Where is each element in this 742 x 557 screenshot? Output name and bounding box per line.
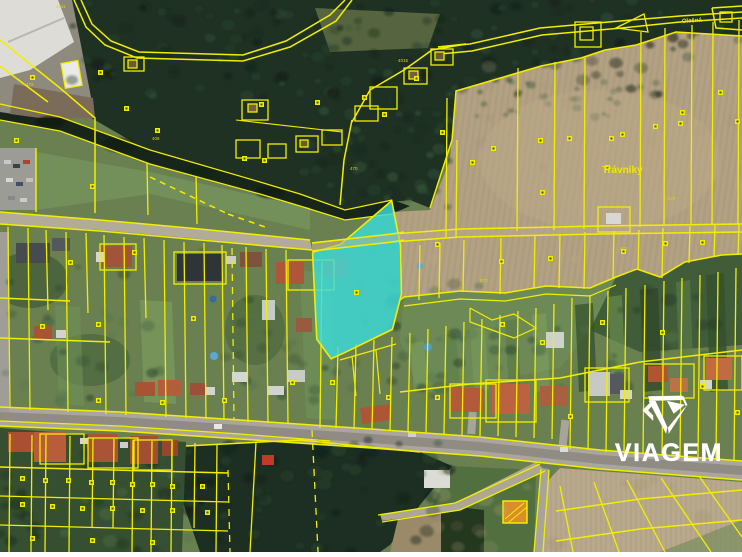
svg-text:VIAGEM: VIAGEM (615, 439, 723, 467)
svg-text:470: 470 (350, 166, 358, 171)
svg-text:672: 672 (668, 196, 676, 201)
svg-text:4015: 4015 (398, 58, 409, 63)
svg-text:Trávníky: Trávníky (602, 165, 643, 176)
svg-text:873: 873 (480, 278, 488, 283)
svg-text:472: 472 (26, 82, 34, 87)
svg-text:408: 408 (152, 136, 160, 141)
svg-text:4011: 4011 (56, 4, 66, 9)
svg-text:871: 871 (620, 246, 628, 251)
